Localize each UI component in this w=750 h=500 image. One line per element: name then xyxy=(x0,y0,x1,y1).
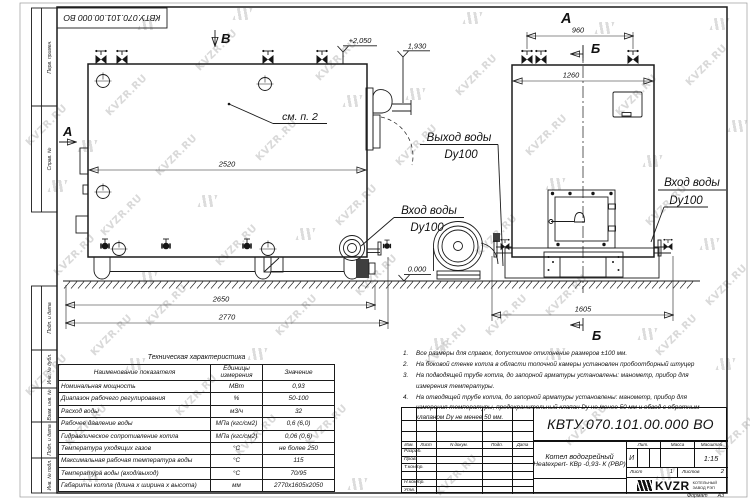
tb-row-label xyxy=(402,471,436,479)
ground-line xyxy=(63,281,700,289)
view-b-marker: В xyxy=(221,31,230,46)
table-row: Диапазон рабочего регулирования%50-100 xyxy=(59,393,335,405)
section-a-marker: А xyxy=(62,124,72,139)
inlet-flange xyxy=(340,236,365,261)
water-inlet-callout-front: Вход воды Dy100 xyxy=(651,177,726,242)
boiler-front-view: 1260 960 А Б xyxy=(492,11,726,343)
boiler-side-view: 2520 xyxy=(59,30,503,329)
dim-1605: 1605 xyxy=(575,305,592,314)
spec-table-title: Техническая характеристика xyxy=(58,354,335,362)
tb-sheet-value: 1 xyxy=(670,469,673,475)
svg-text:Вход воды: Вход воды xyxy=(664,177,720,189)
tb-col-podp: Подп. xyxy=(482,441,512,448)
svg-text:Dy100: Dy100 xyxy=(669,195,703,207)
section-b-bottom-marker: Б xyxy=(592,328,601,343)
margin-label: Инв. № дубл. xyxy=(47,354,53,385)
svg-text:Dy100: Dy100 xyxy=(444,149,478,161)
dim-960: 960 xyxy=(572,26,585,35)
tb-lit-label: Лит. xyxy=(626,441,660,449)
flue-duct xyxy=(366,88,413,165)
dim-2770: 2770 xyxy=(218,313,236,322)
table-row: Температура воды (вход/выход)°С70/95 xyxy=(59,467,335,479)
tb-col-data: Дата xyxy=(512,441,533,448)
margin-label: Справ. № xyxy=(47,147,53,170)
top-stamp-designation: КВТУ.070.101.00.000 ВО xyxy=(63,13,160,23)
margin-label: Взам. инв. № xyxy=(47,389,53,421)
view-a-marker: А xyxy=(560,11,571,27)
see-note-callout: см. п. 2 xyxy=(228,103,327,124)
tb-scale-value: 1:15 xyxy=(694,449,728,467)
dim-2520: 2520 xyxy=(218,160,236,169)
water-outlet-callout: Выход воды Dy100 xyxy=(420,132,503,266)
table-row: Максимальная рабочая температура воды°С1… xyxy=(59,455,335,467)
section-b-top-marker: Б xyxy=(591,41,600,56)
margin-label: Перв. примен. xyxy=(47,40,53,73)
tb-sheets-label: Листов xyxy=(682,470,699,475)
note-item: 3.На подводящей трубе котла, до запорной… xyxy=(403,371,720,391)
tb-sheet-label: Лист xyxy=(630,470,642,475)
svg-text:Dy100: Dy100 xyxy=(410,222,444,234)
svg-text:Выход воды: Выход воды xyxy=(427,132,492,144)
kvzr-logo-icon xyxy=(637,480,652,491)
margin-label: Инв. № подл. xyxy=(47,459,53,490)
tb-scale-label: Масштаб xyxy=(694,441,728,449)
table-row: Гидравлическое сопротивление котлаМПа (к… xyxy=(59,430,335,442)
front-base xyxy=(505,248,659,278)
water-inlet-callout-side: Вход воды Dy100 xyxy=(361,205,464,246)
tb-mass-label: Масса xyxy=(660,441,694,449)
tb-col-ndoc: N докум. xyxy=(436,441,482,448)
svg-text:0.000: 0.000 xyxy=(408,265,427,274)
table-row: Габариты котла (длина х ширина х высота)… xyxy=(59,480,335,492)
margin-column: Перв. примен. Справ. № Подп. и дата Инв.… xyxy=(32,8,58,493)
note-item: 1.Все размеры для справок, допустимое от… xyxy=(403,349,720,359)
table-row: Рабочее давление водыМПа (кгс/см2)0,6 (6… xyxy=(59,418,335,430)
dim-1260: 1260 xyxy=(563,71,580,80)
svg-text:1,930: 1,930 xyxy=(408,42,427,51)
elevation-pipe: 1,930 xyxy=(398,42,431,104)
drawing-sheet: KVZR.RUKVZR.RUKVZR.RUKVZR.RUKVZR.RUKVZR.… xyxy=(0,0,750,500)
tb-col-list: Лист xyxy=(416,441,436,448)
tb-col-izm: Изм. xyxy=(402,441,416,448)
tb-row-label: Пров. xyxy=(402,456,436,464)
spec-table: Техническая характеристика Наименование … xyxy=(58,354,335,492)
tb-sheets-value: 2 xyxy=(721,469,724,475)
col-header: Значение xyxy=(263,364,335,380)
col-header: Единицы измерения xyxy=(211,364,263,380)
access-panel xyxy=(613,92,642,117)
table-row: Расход водым3/ч32 xyxy=(59,405,335,417)
tb-designation: КВТУ.070.101.00.000 ВО xyxy=(533,408,728,441)
table-header-row: Наименование показателя Единицы измерени… xyxy=(59,364,335,380)
kvzr-logo-sub2: ЗАВОД РЭП xyxy=(693,486,717,490)
table-row: Номинальная мощностьМВт0,93 xyxy=(59,380,335,392)
dim-2650: 2650 xyxy=(212,295,230,304)
tb-product-name: Котел водогрейный xyxy=(545,452,613,461)
col-header: Наименование показателя xyxy=(59,364,211,380)
tb-product-model: Heatexpert- КВр -0,93- К (РВР) xyxy=(533,461,625,468)
note-item: 2.На боковой стенке котла в области топо… xyxy=(403,360,720,370)
svg-text:см. п. 2: см. п. 2 xyxy=(282,111,318,123)
tb-lit-value: И xyxy=(626,449,637,467)
title-block: Изм. Лист N докум. Подп. Дата Разраб. Пр… xyxy=(401,407,727,493)
format-note: ФорматА3 xyxy=(687,493,734,499)
svg-text:Вход воды: Вход воды xyxy=(401,205,457,217)
tb-row-label: Т.контр. xyxy=(402,463,436,471)
margin-label: Подп. и дата xyxy=(47,302,53,334)
furnace-door xyxy=(548,190,616,248)
tb-row-label: Н.контр. xyxy=(402,479,436,487)
kvzr-logo-text: KVZR xyxy=(655,479,690,493)
elevation-zero: 0.000 xyxy=(399,265,432,282)
tb-row-label: Утв. xyxy=(402,486,436,494)
table-row: Температура уходящих газов°Сне более 250 xyxy=(59,442,335,454)
tb-row-label: Разраб. xyxy=(402,448,436,456)
svg-text:+2,050: +2,050 xyxy=(349,36,373,45)
margin-label: Подп. и дата xyxy=(47,424,53,456)
elevation-top: +2,050 xyxy=(338,36,378,64)
